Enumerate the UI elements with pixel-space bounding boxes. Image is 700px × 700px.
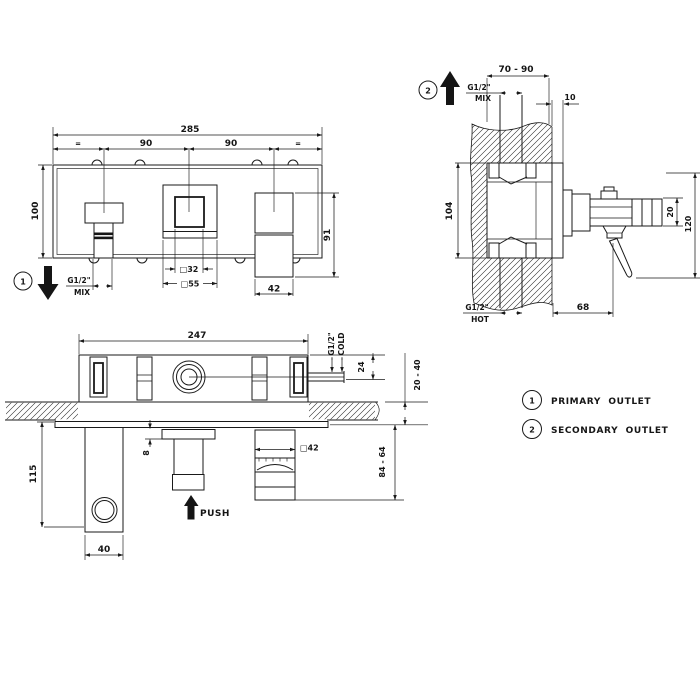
- dim-equal-left: =: [75, 140, 81, 148]
- push-arrow-icon: [184, 495, 199, 520]
- legend: 1 PRIMARY OUTLET 2 SECONDARY OUTLET: [523, 391, 669, 439]
- front-view: 285 = 90 90 = 100 91 □32 □55 42 G1/2": [14, 125, 339, 300]
- dim-knob-square: □42: [300, 444, 319, 453]
- section-view: 70 - 90 10 104 G1/2" MIX G1/2" HOT 68 20…: [419, 65, 700, 324]
- dim-holder-width: 40: [98, 545, 111, 555]
- dim-projection: 68: [577, 303, 590, 313]
- callout-number-1: 1: [20, 278, 26, 287]
- mix-thread-top: G1/2": [467, 83, 490, 92]
- rough-in-body-section: [487, 163, 552, 258]
- handshower-holder: [85, 428, 123, 533]
- down-arrow-icon: [38, 266, 59, 300]
- lever-joint: [603, 226, 626, 238]
- up-arrow-icon: [440, 71, 460, 105]
- push-diverter: PUSH: [162, 430, 230, 520]
- dim-overall-width: 285: [181, 125, 200, 135]
- dim-holder-height: 115: [29, 465, 39, 484]
- plan-wall-band: [5, 402, 379, 420]
- dim-body-height: 100: [31, 202, 41, 221]
- dim-knob-depth-range: 84 - 64: [378, 446, 387, 478]
- dim-rough-in-height: 104: [445, 202, 455, 221]
- mixer-installation-drawing: 285 = 90 90 = 100 91 □32 □55 42 G1/2": [0, 0, 700, 700]
- dim-spout-width: 42: [268, 285, 281, 295]
- technical-drawing-page: 285 = 90 90 = 100 91 □32 □55 42 G1/2": [0, 0, 700, 700]
- legend-label-secondary-outlet: SECONDARY OUTLET: [551, 426, 669, 436]
- dim-wall-depth-range: 70 - 90: [498, 65, 533, 75]
- hot-thread-label: G1/2": [465, 303, 488, 312]
- plan-view: PUSH 247 115 40 8 □42 84 - 64: [5, 331, 428, 560]
- callout-number-2: 2: [425, 87, 431, 96]
- dim-span-left: 90: [140, 139, 153, 149]
- center-handle-front: [163, 150, 217, 238]
- dim-wall-depth-range-plan: 20 - 40: [413, 359, 422, 391]
- legend-number-1: 1: [529, 397, 535, 406]
- front-view-callout: 1: [14, 266, 59, 300]
- cold-thread-label: G1/2": [327, 332, 336, 355]
- dim-lever-height: 91: [323, 229, 333, 242]
- trim-plate-plan: [55, 422, 328, 428]
- push-label: PUSH: [200, 509, 230, 519]
- dim-flange-gap: 8: [142, 450, 151, 456]
- dim-spout-size: 20: [666, 206, 675, 218]
- dim-equal-right: =: [295, 140, 301, 148]
- legend-label-primary-outlet: PRIMARY OUTLET: [551, 397, 651, 407]
- mix-type-label: MIX: [74, 288, 90, 297]
- valve-trim-section: [563, 187, 662, 277]
- legend-number-2: 2: [529, 426, 535, 435]
- dim-span-right: 90: [225, 139, 238, 149]
- plan-rough-in-body: [79, 355, 344, 402]
- cold-label: COLD: [337, 333, 346, 356]
- dim-plan-width: 247: [188, 331, 207, 341]
- dim-square-inner: □32: [180, 265, 199, 274]
- wall-plate-section: [552, 163, 563, 258]
- hot-label: HOT: [471, 315, 490, 324]
- dim-overall-height: 120: [684, 215, 693, 232]
- volume-knob-plan: [255, 430, 295, 500]
- mix-thread-label: G1/2": [67, 276, 90, 285]
- dim-square-outer: □55: [181, 280, 200, 289]
- dim-cold-offset: 24: [357, 361, 366, 373]
- dim-plate-thickness: 10: [564, 93, 576, 102]
- mix-label-top: MIX: [475, 94, 491, 103]
- section-view-callout: 2: [419, 71, 460, 105]
